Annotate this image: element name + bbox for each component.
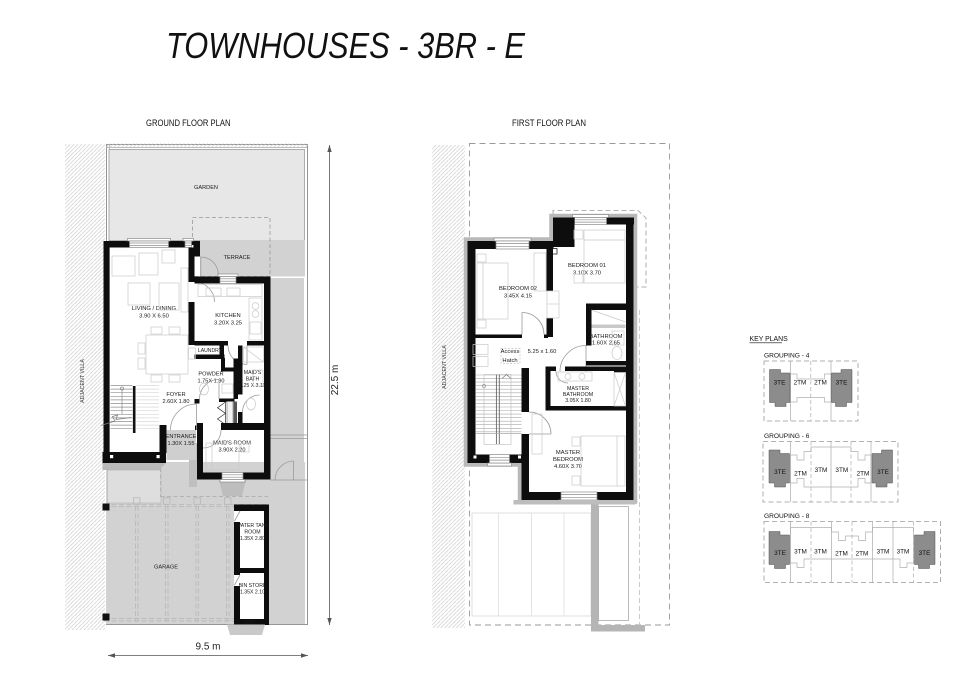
svg-text:22.5 m: 22.5 m [330,365,341,396]
svg-text:WATER TANK: WATER TANK [236,523,269,529]
svg-text:2TM: 2TM [794,471,807,478]
svg-text:GARAGE: GARAGE [154,565,178,571]
svg-text:GROUPING - 4: GROUPING - 4 [764,353,810,360]
svg-text:3TM: 3TM [814,549,827,556]
svg-text:ADJACENT VILLA: ADJACENT VILLA [442,345,448,389]
svg-text:1.35X 2.80: 1.35X 2.80 [240,536,265,542]
svg-text:3.90X 2.20: 3.90X 2.20 [218,448,245,454]
svg-text:3.20X 3.25: 3.20X 3.25 [214,321,242,327]
svg-text:MAID'S ROOM: MAID'S ROOM [213,441,251,447]
svg-text:1.35X 2.10: 1.35X 2.10 [240,590,265,596]
svg-text:Access: Access [501,349,520,355]
svg-text:BEDROOM 01: BEDROOM 01 [568,263,606,269]
svg-text:Hatch: Hatch [502,358,517,364]
svg-text:1.60X 2.65: 1.60X 2.65 [592,341,620,347]
svg-text:2.60X 1.80: 2.60X 1.80 [162,399,189,405]
svg-text:BIN STORE: BIN STORE [239,583,267,589]
svg-text:KEY PLANS: KEY PLANS [750,336,789,343]
svg-text:3TM: 3TM [835,467,848,474]
svg-text:LAUNDRY: LAUNDRY [198,348,223,354]
svg-text:2TM: 2TM [857,471,870,478]
svg-text:3.10X 3.70: 3.10X 3.70 [573,271,601,277]
svg-text:GARDEN: GARDEN [194,185,218,191]
svg-text:KITCHEN: KITCHEN [215,313,240,319]
svg-text:3.90 X 6.50: 3.90 X 6.50 [139,314,169,320]
svg-text:ROOM: ROOM [244,530,260,536]
svg-text:TOWNHOUSES - 3BR - E: TOWNHOUSES - 3BR - E [166,25,526,66]
svg-text:TERRACE: TERRACE [224,255,251,261]
svg-text:3TE: 3TE [836,380,848,387]
svg-text:3TE: 3TE [774,550,786,557]
svg-text:3TM: 3TM [815,467,828,474]
svg-text:2TM: 2TM [856,551,869,558]
svg-text:BATH: BATH [246,377,260,383]
svg-text:ENTRANCE: ENTRANCE [166,434,197,440]
svg-text:4.60X 3.70: 4.60X 3.70 [554,464,582,470]
svg-text:BEDROOM 02: BEDROOM 02 [499,286,537,292]
svg-text:3TM: 3TM [877,549,890,556]
svg-text:2TM: 2TM [794,380,807,387]
svg-text:3TE: 3TE [774,469,786,476]
svg-text:3TE: 3TE [774,380,786,387]
svg-text:POWDER: POWDER [198,372,223,378]
svg-text:LIVING / DINING: LIVING / DINING [132,306,177,312]
svg-text:BATHROOM: BATHROOM [589,334,622,340]
svg-text:3TE: 3TE [877,469,889,476]
svg-text:5.25 x 1.60: 5.25 x 1.60 [528,349,557,355]
svg-text:3TM: 3TM [794,549,807,556]
svg-text:3TE: 3TE [919,550,931,557]
svg-text:FIRST FLOOR PLAN: FIRST FLOOR PLAN [512,118,586,129]
svg-text:GROUPING - 8: GROUPING - 8 [764,513,810,520]
svg-text:3TM: 3TM [897,549,910,556]
svg-text:1.30X 1.55: 1.30X 1.55 [167,441,194,447]
svg-text:2TM: 2TM [835,551,848,558]
svg-text:GROUPING - 6: GROUPING - 6 [764,433,810,440]
svg-text:ADJACENT VILLA: ADJACENT VILLA [80,359,86,403]
svg-text:FOYER: FOYER [166,392,185,398]
svg-text:GROUND FLOOR PLAN: GROUND FLOOR PLAN [146,118,231,129]
svg-text:2TM: 2TM [814,380,827,387]
svg-text:MASTER: MASTER [556,450,580,456]
svg-text:3.05X 1.80: 3.05X 1.80 [565,398,591,404]
svg-text:9.5 m: 9.5 m [195,642,220,653]
svg-text:BEDROOM: BEDROOM [553,457,583,463]
